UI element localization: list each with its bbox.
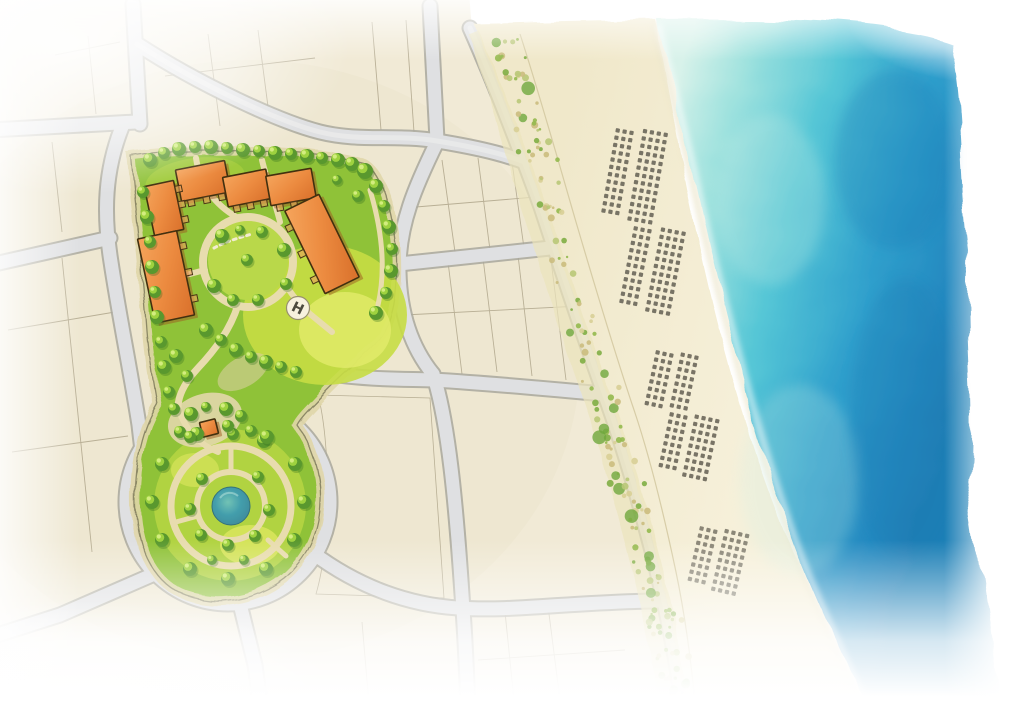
water-highlight-blotch bbox=[715, 115, 825, 285]
water-deep-streak bbox=[835, 70, 955, 250]
water-deep-streak bbox=[850, 280, 960, 560]
pond bbox=[212, 487, 250, 525]
site-plan-canvas: H bbox=[0, 0, 1024, 724]
site-plan-stage: H bbox=[0, 0, 1024, 724]
helipad: H bbox=[287, 297, 310, 320]
